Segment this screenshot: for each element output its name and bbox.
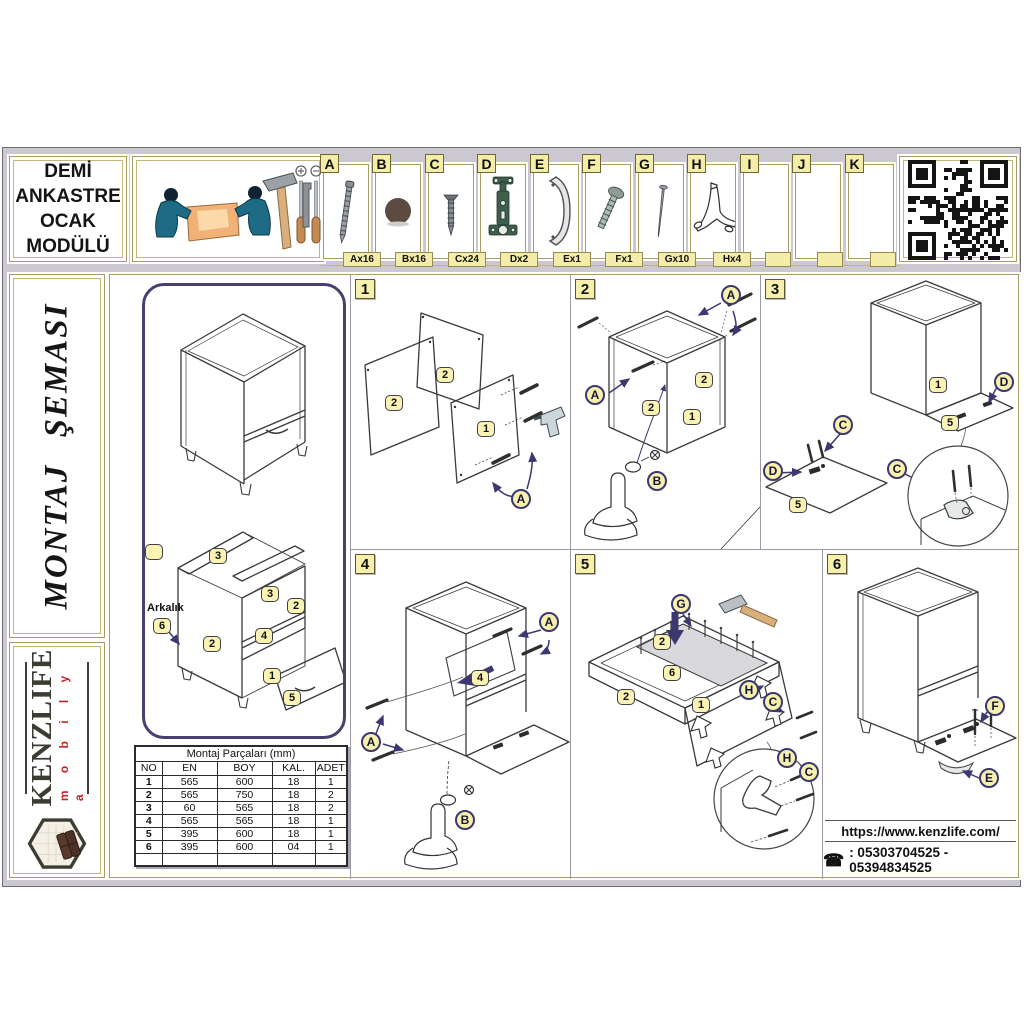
col-header: EN: [162, 761, 217, 775]
brand-text-block: KENZLIFE m o b i l y a: [25, 648, 89, 807]
step-3-cell: 3 1 5 D C D 5 C: [761, 275, 1018, 549]
cell: 2: [315, 801, 347, 814]
parts-table: Montaj Parçaları (mm) NO EN BOY KAL. ADE…: [134, 745, 348, 867]
plastic-leg-icon: [691, 165, 735, 258]
part-badge: 6: [153, 618, 171, 634]
callout-circle: A: [539, 612, 559, 632]
hardware-letter-badge: D: [477, 154, 496, 173]
qr-code-icon: [908, 160, 1008, 260]
hardware-letter-badge: K: [845, 154, 864, 173]
callout-circle: A: [361, 732, 381, 752]
instruction-sheet-page: DEMİ ANKASTRE OCAK MODÜLÜ: [0, 0, 1024, 1024]
part-badge: 3: [209, 548, 227, 564]
table-row: 4565565181: [135, 814, 347, 827]
callout-circle: C: [833, 415, 853, 435]
handle-icon: [534, 165, 578, 258]
hardware-item-A: [323, 164, 369, 259]
hardware-qty-label: Dx2: [500, 252, 538, 267]
part-badge: 2: [287, 598, 305, 614]
part-badge: 3: [261, 586, 279, 602]
step-4-cell: 4 A A 4 B: [351, 550, 570, 879]
cell-no: 6: [135, 840, 162, 853]
title-line: ANKASTRE: [15, 184, 121, 209]
product-overview-panel: Arkalık 3 3 2 4 2 1 5 6: [142, 283, 346, 739]
phone-row: ☎ : 05303704525 - 05394834525: [823, 842, 1018, 875]
col-header: NO: [135, 761, 162, 775]
step-1-illustration: [351, 275, 570, 549]
cell: 565: [162, 775, 217, 788]
website-url: https://www.kenzlife.com/: [823, 821, 1018, 841]
cell: 1: [315, 775, 347, 788]
cell: 600: [217, 775, 272, 788]
cell: [162, 853, 217, 866]
cell: 600: [217, 840, 272, 853]
schema-title-box: MONTAJ ŞEMASI: [9, 274, 105, 638]
cell: 18: [272, 827, 315, 840]
hardware-qty-label: Hx4: [713, 252, 751, 267]
cell: 18: [272, 814, 315, 827]
callout-circle: F: [985, 696, 1005, 716]
cell: [315, 853, 347, 866]
part-badge: 1: [477, 421, 495, 437]
hardware-qty-label: [765, 252, 791, 267]
tools-box: [132, 156, 324, 262]
step-number: 4: [355, 554, 375, 574]
cell: 2: [315, 788, 347, 801]
part-badge: 2: [642, 400, 660, 416]
step-number: 5: [575, 554, 595, 574]
step-number: 6: [827, 554, 847, 574]
part-badge: 2: [653, 634, 671, 650]
phone-icon: ☎: [823, 852, 844, 869]
part-badge: 5: [789, 497, 807, 513]
step-1-cell: 1 2 2 1 A: [351, 275, 570, 549]
cell: 04: [272, 840, 315, 853]
part-badge: [145, 544, 163, 560]
cell: [272, 853, 315, 866]
hardware-letter-badge: F: [582, 154, 601, 173]
hardware-item-B: [375, 164, 421, 259]
hardware-qty-label: Ax16: [343, 252, 381, 267]
step-2-cell: 2 A A 2 2 1 B: [571, 275, 760, 549]
cell: 1: [315, 840, 347, 853]
brand-name: KENZLIFE: [27, 649, 57, 807]
cell: 395: [162, 840, 217, 853]
callout-circle: C: [887, 459, 907, 479]
hardware-qty-label: Cx24: [448, 252, 486, 267]
part-badge: 1: [683, 409, 701, 425]
hardware-item-D: [480, 164, 526, 259]
part-badge: 5: [283, 690, 301, 706]
table-row: 2565750182: [135, 788, 347, 801]
cell: 395: [162, 827, 217, 840]
step-number: 2: [575, 279, 595, 299]
hardware-item-J: [795, 164, 841, 259]
cell-no: 3: [135, 801, 162, 814]
hardware-item-C: [428, 164, 474, 259]
hardware-item-K: [848, 164, 894, 259]
cell-no: 2: [135, 788, 162, 801]
cell-no: 4: [135, 814, 162, 827]
main-drawing-panel: Arkalık 3 3 2 4 2 1 5 6 Montaj Parçaları…: [109, 274, 1019, 878]
part-badge: 2: [203, 636, 221, 652]
hardware-letter-badge: H: [687, 154, 706, 173]
hardware-qty-label: [817, 252, 843, 267]
part-badge: 2: [385, 395, 403, 411]
part-badge: 1: [929, 377, 947, 393]
col-header: KAL.: [272, 761, 315, 775]
hardware-qty-label: Gx10: [658, 252, 696, 267]
cell: 18: [272, 788, 315, 801]
nail-icon: [639, 165, 683, 258]
hardware-letter-badge: I: [740, 154, 759, 173]
table-row: 6395600041: [135, 840, 347, 853]
cell: [217, 853, 272, 866]
assembly-sheet: DEMİ ANKASTRE OCAK MODÜLÜ: [2, 147, 1021, 887]
brand-rule-bottom: [87, 662, 89, 794]
cell: 18: [272, 801, 315, 814]
hardware-qty-label: Fx1: [605, 252, 643, 267]
back-panel-label: Arkalık: [147, 602, 184, 614]
step-5-cell: 5 G 2 6 2 1 H C H C: [571, 550, 822, 879]
cell: 565: [162, 788, 217, 801]
parts-table-wrap: Montaj Parçaları (mm) NO EN BOY KAL. ADE…: [134, 745, 348, 867]
phone-numbers: : 05303704525 - 05394834525: [849, 845, 1018, 875]
hardware-letter-badge: A: [320, 154, 339, 173]
parts-table-title-row: Montaj Parçaları (mm): [135, 746, 347, 761]
qr-box: [899, 156, 1017, 262]
callout-circle: C: [799, 762, 819, 782]
title-line: MODÜLÜ: [26, 234, 109, 259]
brand-logo: KENZLIFE m o b i l y a: [12, 648, 102, 872]
cell: 750: [217, 788, 272, 801]
workers-and-tools-illustration: [135, 159, 321, 259]
callout-circle: A: [585, 385, 605, 405]
part-badge: 1: [263, 668, 281, 684]
part-badge: 5: [941, 415, 959, 431]
confirmat-screw-icon: [324, 165, 368, 258]
col-header: BOY: [217, 761, 272, 775]
part-badge: 4: [471, 670, 489, 686]
callout-circle: A: [511, 489, 531, 509]
callout-circle: D: [763, 461, 783, 481]
title-line: OCAK: [40, 209, 96, 234]
part-badge: 6: [663, 665, 681, 681]
parts-table-title: Montaj Parçaları (mm): [135, 746, 347, 761]
overview-cabinet-illustration: [145, 286, 343, 736]
callout-circle: E: [979, 768, 999, 788]
handle-bolt-icon: [586, 165, 630, 258]
hardware-letter-badge: J: [792, 154, 811, 173]
col-header: ADET: [315, 761, 347, 775]
table-row: 1565600181: [135, 775, 347, 788]
schema-title: MONTAJ ŞEMASI: [39, 302, 76, 609]
callout-circle: H: [739, 680, 759, 700]
hardware-item-I: [743, 164, 789, 259]
step-4-illustration: [351, 550, 570, 879]
parts-table-header-row: NO EN BOY KAL. ADET: [135, 761, 347, 775]
callout-circle: A: [721, 285, 741, 305]
kenzlife-hexagon-icon: [26, 815, 88, 872]
hardware-letter-badge: G: [635, 154, 654, 173]
part-badge: 2: [617, 689, 635, 705]
cell: 60: [162, 801, 217, 814]
cell-no: 5: [135, 827, 162, 840]
step-5-illustration: [571, 550, 822, 879]
callout-circle: B: [647, 471, 667, 491]
hardware-item-E: [533, 164, 579, 259]
contact-footer: https://www.kenzlife.com/ ☎ : 0530370452…: [823, 820, 1018, 875]
cell: [135, 853, 162, 866]
hardware-letter-badge: E: [530, 154, 549, 173]
hardware-letter-badge: C: [425, 154, 444, 173]
callout-circle: B: [455, 810, 475, 830]
cell: 18: [272, 775, 315, 788]
callout-circle: D: [994, 372, 1014, 392]
cell: 565: [217, 801, 272, 814]
hardware-item-H: [690, 164, 736, 259]
hardware-qty-label: [870, 252, 896, 267]
hardware-qty-label: Bx16: [395, 252, 433, 267]
hardware-letter-badge: B: [372, 154, 391, 173]
allen-key-icon: [303, 183, 311, 227]
step-number: 3: [765, 279, 785, 299]
step-6-cell: 6 F E https://www.kenzlife.com/ ☎ : 0530…: [823, 550, 1018, 879]
callout-circle: G: [671, 594, 691, 614]
chipboard-screw-icon: [429, 165, 473, 258]
cell: 1: [315, 814, 347, 827]
hardware-qty-label: Ex1: [553, 252, 591, 267]
cell: 600: [217, 827, 272, 840]
cover-cap-icon: [376, 165, 420, 258]
cell-no: 1: [135, 775, 162, 788]
step-number: 1: [355, 279, 375, 299]
table-row-empty: [135, 853, 347, 866]
table-row: 360565182: [135, 801, 347, 814]
part-badge: 4: [255, 628, 273, 644]
hardware-item-F: [585, 164, 631, 259]
cell: 1: [315, 827, 347, 840]
part-badge: 2: [695, 372, 713, 388]
table-row: 5395600181: [135, 827, 347, 840]
cell: 565: [162, 814, 217, 827]
hinge-icon: [481, 165, 525, 258]
callout-circle: H: [777, 748, 797, 768]
brand-logo-box: KENZLIFE m o b i l y a: [9, 642, 105, 878]
callout-circle: C: [763, 692, 783, 712]
flat-screwdriver-icon: [311, 166, 321, 243]
workers-carrying-panel-icon: [156, 186, 271, 241]
brand-subtitle: m o b i l y a: [57, 648, 87, 801]
product-title-box: DEMİ ANKASTRE OCAK MODÜLÜ: [9, 156, 127, 262]
part-badge: 1: [692, 697, 710, 713]
product-title: DEMİ ANKASTRE OCAK MODÜLÜ: [10, 157, 126, 261]
part-badge: 2: [436, 367, 454, 383]
title-line: DEMİ: [44, 159, 92, 184]
step-2-illustration: [571, 275, 760, 549]
cell: 565: [217, 814, 272, 827]
hardware-item-G: [638, 164, 684, 259]
